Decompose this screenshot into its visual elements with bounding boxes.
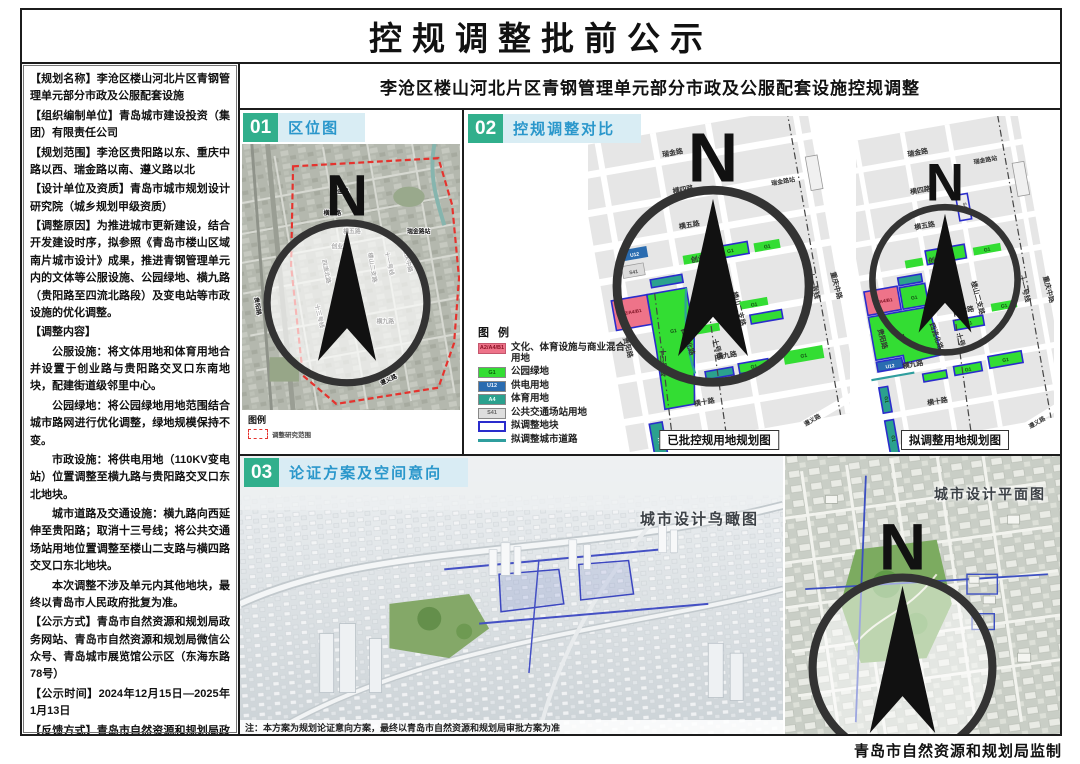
north-letter: N bbox=[926, 154, 964, 213]
adjust-content-heading: 【调整内容】 bbox=[30, 324, 230, 341]
power-swatch: U12 bbox=[478, 381, 506, 392]
transit-swatch: S41 bbox=[478, 408, 506, 419]
publicity-method: 【公示方式】青岛市自然资源和规划局政务网站、青岛市自然资源和规划局微信公众号、青… bbox=[30, 614, 230, 684]
adjust-content-municipal: 市政设施：将供电用地（110KV变电站）位置调整至横九路与贵阳路交叉口东北地块。 bbox=[30, 452, 230, 504]
adjust-reason: 【调整原因】为推进城市更新建设，结合开发建设时序，拟参照《青岛市楼山区域南片城市… bbox=[30, 218, 230, 322]
location-legend: 图例 调整研究范围 bbox=[240, 410, 462, 454]
location-satellite-map: 瑞金路 横四路 横五路 创业路 四流北路 十号线 楼山二支路 十一号线 重庆中路… bbox=[242, 144, 460, 410]
plan-name: 【规划名称】李沧区楼山河北片区青钢管理单元部分市政及公服配套设施 bbox=[30, 71, 230, 106]
parcel-code: G1 bbox=[889, 435, 896, 443]
section1-number: 01 bbox=[243, 113, 278, 142]
adjust-content-public: 公服设施：将文体用地和体育用地合并设置于创业路与贵阳路交叉口东南地块，配建街道级… bbox=[30, 344, 230, 396]
section1-header: 01 区位图 bbox=[243, 113, 365, 142]
adjust-road-swatch bbox=[478, 439, 506, 442]
section3-title: 论证方案及空间意向 bbox=[279, 458, 468, 487]
section3-number: 03 bbox=[244, 458, 279, 487]
main-content: 李沧区楼山河北片区青钢管理单元部分市政及公服配套设施控规调整 01 区位图 bbox=[240, 64, 1060, 734]
adjust-parcel-swatch bbox=[478, 421, 506, 432]
poster-body: 【规划名称】李沧区楼山河北片区青钢管理单元部分市政及公服配套设施 【组织编制单位… bbox=[22, 64, 1060, 734]
legend-label: 拟调整城市道路 bbox=[511, 435, 629, 446]
panel-location: 01 区位图 bbox=[240, 110, 464, 454]
adjust-content-final: 本次调整不涉及单元内其他地块，最终以青岛市人民政府批复为准。 bbox=[30, 578, 230, 613]
info-sidebar: 【规划名称】李沧区楼山河北片区青钢管理单元部分市政及公服配套设施 【组织编制单位… bbox=[22, 64, 240, 734]
top-row: 01 区位图 bbox=[240, 110, 1060, 456]
plan-scope: 【规划范围】李沧区贵阳路以东、重庆中路以西、瑞金路以南、遵义路以北 bbox=[30, 145, 230, 180]
birdseye-image bbox=[240, 456, 783, 734]
design-unit: 【设计单位及资质】青岛市城市规划设计研究院（城乡规划甲级资质） bbox=[30, 181, 230, 216]
section3-header: 03 论证方案及空间意向 bbox=[244, 458, 468, 487]
north-arrow: N bbox=[846, 92, 1044, 428]
feedback-method: 【反馈方式】青岛市自然资源和规划局政务网站、青岛城市展览馆公示区意见箱。 bbox=[30, 723, 230, 735]
north-arrow: N bbox=[582, 92, 844, 428]
legend-item-boundary: 调整研究范围 bbox=[248, 429, 454, 439]
north-letter: N bbox=[326, 164, 368, 229]
poster-frame: 控规调整批前公示 【规划名称】李沧区楼山河北片区青钢管理单元部分市政及公服配套设… bbox=[20, 8, 1062, 736]
approved-map-caption: 已批控规用地规划图 bbox=[659, 430, 779, 450]
sports-swatch: A4 bbox=[478, 394, 506, 405]
boundary-swatch bbox=[248, 429, 268, 439]
scheme-note: 注：本方案为规划论证意向方案，最终以青岛市自然资源和规划局审批方案为准 bbox=[240, 720, 783, 734]
birdseye-render: 城市设计鸟瞰图 注：本方案为规划论证意向方案，最终以青岛市自然资源和规划局审批方… bbox=[240, 456, 785, 734]
park-swatch: G1 bbox=[478, 367, 506, 378]
panel-comparison: 02 控规调整对比 图 例 A2/A4/B1 文化、体育设施与商业混合用地 G bbox=[464, 110, 1060, 454]
mixed-use-swatch: A2/A4/B1 bbox=[478, 343, 506, 354]
masterplan-render: 城市设计平面图 N bbox=[785, 456, 1060, 734]
organizer: 【组织编制单位】青岛城市建设投资（集团）有限责任公司 bbox=[30, 108, 230, 143]
proposed-plan-map: 瑞金路 横四路 横五路 创业路 横七路 横九路 横十路 贵阳路 四流北路 十 bbox=[856, 116, 1054, 452]
proposed-map-caption: 拟调整用地规划图 bbox=[901, 430, 1009, 450]
masterplan-caption: 城市设计平面图 bbox=[934, 484, 1046, 504]
adjust-content-green: 公园绿地：将公园绿地用地范围结合城市路网进行优化调整，绿地规模保持不变。 bbox=[30, 398, 230, 450]
adjust-content-roads: 城市道路及交通设施：横九路向西延伸至贵阳路；取消十三号线；将公共交通场站用地位置… bbox=[30, 506, 230, 576]
approved-plan-map: 瑞金路 横四路 横五路 创业路 横七路 横九路 横十路 贵阳路 四流北路 十 bbox=[588, 116, 850, 452]
legend-title: 图例 bbox=[248, 413, 454, 426]
legend-item-adjust-road: 拟调整城市道路 bbox=[478, 435, 650, 446]
birdseye-caption: 城市设计鸟瞰图 bbox=[640, 508, 759, 529]
legend-item-label: 调整研究范围 bbox=[272, 429, 311, 439]
north-arrow: N bbox=[785, 504, 1040, 734]
public-notice-poster: 控规调整批前公示 【规划名称】李沧区楼山河北片区青钢管理单元部分市政及公服配套设… bbox=[0, 0, 1080, 764]
issuer-credit: 青岛市自然资源和规划局监制 bbox=[20, 740, 1062, 761]
section1-header-wrap: 01 区位图 bbox=[240, 110, 462, 142]
north-letter: N bbox=[879, 510, 926, 583]
panel-scheme: 03 论证方案及空间意向 bbox=[240, 456, 1060, 734]
section2-number: 02 bbox=[468, 114, 503, 143]
north-letter: N bbox=[688, 118, 738, 196]
page-title: 控规调整批前公示 bbox=[22, 10, 1060, 64]
north-arrow: N bbox=[238, 148, 456, 414]
section1-title: 区位图 bbox=[278, 113, 365, 142]
publicity-time: 【公示时间】2024年12月15日—2025年1月13日 bbox=[30, 686, 230, 721]
